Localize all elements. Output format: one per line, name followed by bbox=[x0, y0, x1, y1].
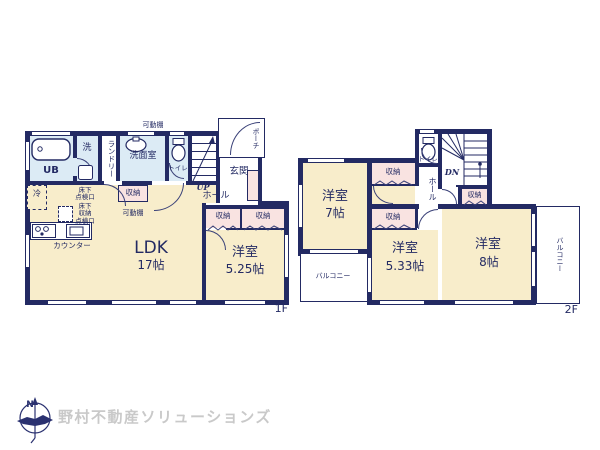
closet-mid-2f-label: 収納 bbox=[377, 213, 409, 221]
window bbox=[170, 300, 196, 305]
floor1-label: 1F bbox=[262, 303, 288, 315]
window bbox=[25, 142, 30, 170]
sink-icon bbox=[125, 137, 147, 152]
underfloor-storage-label: 床下 収納 点検口 bbox=[70, 203, 100, 225]
window bbox=[420, 129, 434, 134]
wall bbox=[258, 156, 262, 203]
bedroom-533-size-label: 5.33帖 bbox=[379, 260, 431, 273]
movable-shelf-top-label: 可動棚 bbox=[135, 122, 171, 130]
wall bbox=[202, 203, 206, 305]
toilet-1f-icon bbox=[171, 138, 186, 162]
washer-pan-icon bbox=[78, 165, 93, 180]
floor2-label: 2F bbox=[552, 304, 578, 316]
closet-b-label: 収納 bbox=[247, 212, 279, 220]
wall bbox=[202, 205, 289, 209]
washroom-label: 洗面室 bbox=[123, 151, 163, 161]
stairs-dn-label: DN bbox=[442, 168, 462, 177]
window bbox=[308, 158, 344, 163]
window bbox=[225, 300, 265, 305]
wall bbox=[240, 209, 242, 228]
window bbox=[531, 214, 536, 246]
balcony-left-label: バルコニー bbox=[303, 273, 363, 281]
window bbox=[112, 300, 156, 305]
bedroom-7-name-label: 洋室 bbox=[313, 190, 357, 205]
toilet-2f-label: トイレ bbox=[416, 156, 440, 163]
wall bbox=[188, 131, 192, 185]
closet-door-zigzag-icon bbox=[208, 225, 238, 231]
window bbox=[170, 131, 184, 136]
floor-plan: 可動棚 UB 洗 ランドリー 洗面室 トイレ ポーチ 玄関 UP ホール 冷 床… bbox=[0, 0, 600, 450]
hall-1f-label: ホール bbox=[198, 191, 234, 201]
window bbox=[531, 252, 536, 286]
laundry-label: ランドリー bbox=[101, 137, 115, 181]
closet-door-zigzag-icon bbox=[374, 180, 412, 186]
bedroom-525-name-label: 洋室 bbox=[223, 246, 267, 261]
stove-icon bbox=[32, 224, 56, 238]
counter-label: カウンター bbox=[50, 242, 94, 250]
compass-icon bbox=[14, 396, 60, 448]
entrance-label: 玄関 bbox=[222, 167, 256, 178]
window bbox=[455, 300, 513, 305]
closet-a-label: 収納 bbox=[209, 212, 237, 220]
bedroom-8-size-label: 8帖 bbox=[471, 256, 507, 269]
closet-door-zigzag-icon bbox=[374, 224, 412, 230]
underfloor-hatch-label: 床下 点検口 bbox=[70, 187, 100, 202]
bedroom-533-name-label: 洋室 bbox=[383, 242, 427, 257]
window bbox=[284, 235, 289, 277]
closet-door-zigzag-icon bbox=[244, 225, 282, 231]
wall bbox=[165, 131, 169, 183]
wall bbox=[116, 131, 120, 183]
ldk-size-label: 17帖 bbox=[131, 259, 171, 272]
window bbox=[298, 185, 303, 227]
window bbox=[32, 131, 70, 136]
bathtub-icon bbox=[31, 138, 71, 161]
ldk-name-label: LDK bbox=[126, 239, 176, 258]
closet-hall-2f-label: 収納 bbox=[461, 192, 488, 200]
hall-2f-label: ホール bbox=[423, 170, 436, 208]
storage-mid-1f-label: 収納 bbox=[120, 189, 146, 197]
window bbox=[48, 300, 86, 305]
movable-shelf-mid-label: 可動棚 bbox=[117, 210, 149, 218]
balcony-right-label: バルコニー bbox=[551, 228, 563, 280]
kitchen-sink-icon bbox=[66, 224, 90, 238]
toilet-1f-label: トイレ bbox=[165, 165, 191, 172]
porch-label: ポーチ bbox=[247, 122, 259, 155]
window bbox=[128, 131, 154, 136]
bath-ub-label: UB bbox=[38, 165, 64, 176]
closet-door-zigzag-icon bbox=[464, 200, 486, 206]
bedroom-7-size-label: 7帖 bbox=[320, 207, 350, 220]
bedroom-525-size-label: 5.25帖 bbox=[219, 263, 271, 276]
wash-label: 洗 bbox=[79, 143, 95, 153]
window bbox=[310, 249, 358, 254]
door-gap bbox=[442, 185, 456, 187]
bedroom-8-name-label: 洋室 bbox=[466, 238, 510, 253]
fridge-label: 冷 bbox=[29, 190, 45, 199]
stairs-2f-icon bbox=[442, 134, 487, 185]
door-arc bbox=[418, 209, 438, 229]
brand-logo-text: 野村不動産ソリューションズ bbox=[58, 406, 272, 427]
wall bbox=[25, 181, 220, 185]
wall bbox=[415, 166, 419, 186]
stairs-up-arrow-icon bbox=[190, 135, 216, 183]
window bbox=[380, 300, 424, 305]
window bbox=[367, 258, 372, 292]
closet-top-2f-label: 収納 bbox=[377, 168, 409, 176]
compass-north-label: N bbox=[24, 400, 36, 410]
